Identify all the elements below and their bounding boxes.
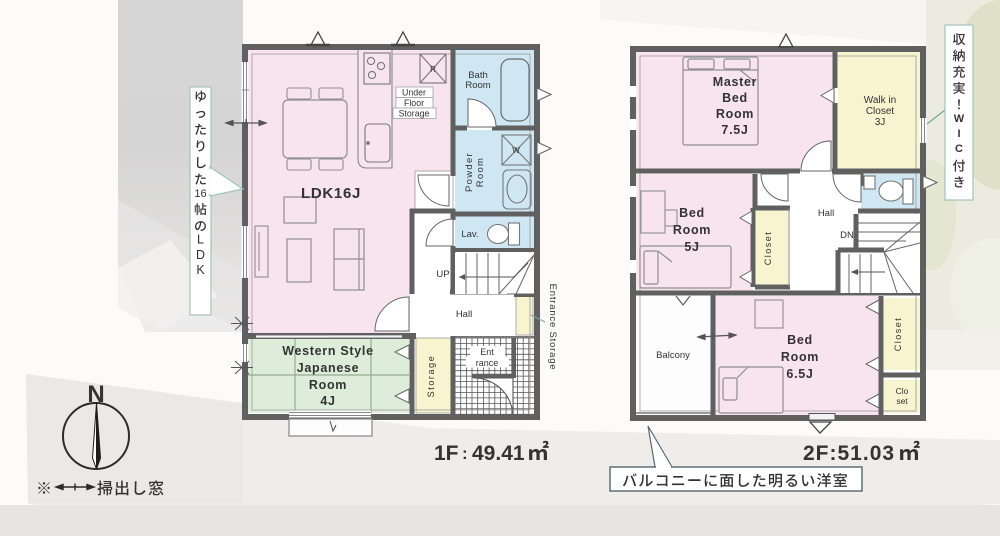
svg-text:Room: Room bbox=[309, 378, 347, 392]
svg-text:2F:51.03: 2F:51.03 bbox=[803, 442, 895, 465]
svg-text:Hall: Hall bbox=[456, 309, 472, 320]
svg-text:UP: UP bbox=[436, 269, 449, 280]
svg-text:Bed: Bed bbox=[787, 333, 813, 347]
svg-text:6.5J: 6.5J bbox=[786, 367, 813, 381]
svg-text:Lav.: Lav. bbox=[461, 229, 478, 240]
svg-text:Western Style: Western Style bbox=[282, 344, 374, 358]
svg-text:K: K bbox=[196, 263, 205, 277]
svg-text:Bed: Bed bbox=[722, 91, 748, 105]
svg-text:LDK16J: LDK16J bbox=[301, 185, 361, 202]
svg-text:3J: 3J bbox=[875, 117, 886, 128]
svg-text:Room: Room bbox=[781, 350, 819, 364]
svg-text:4J: 4J bbox=[320, 394, 335, 408]
svg-text:Under: Under bbox=[402, 88, 426, 98]
svg-text:Room: Room bbox=[716, 107, 754, 121]
svg-text::: : bbox=[462, 444, 468, 463]
svg-text:Closet: Closet bbox=[866, 106, 895, 117]
svg-text:W: W bbox=[512, 146, 520, 155]
svg-text:Storage: Storage bbox=[426, 355, 436, 398]
svg-text:7.5J: 7.5J bbox=[721, 123, 748, 137]
svg-text:rance: rance bbox=[476, 358, 499, 368]
svg-text:Storage: Storage bbox=[399, 109, 430, 119]
svg-text:5J: 5J bbox=[684, 240, 699, 254]
svg-text:R: R bbox=[430, 65, 436, 74]
svg-text:Room: Room bbox=[475, 157, 486, 188]
svg-text:49.41: 49.41 bbox=[472, 442, 525, 465]
svg-text:16: 16 bbox=[194, 188, 206, 200]
svg-text:Walk in: Walk in bbox=[864, 95, 896, 106]
svg-text:C: C bbox=[955, 143, 963, 155]
svg-text:1F: 1F bbox=[434, 442, 459, 465]
svg-text:Powder: Powder bbox=[464, 152, 475, 192]
svg-text:set: set bbox=[896, 396, 908, 406]
svg-text:Closet: Closet bbox=[763, 231, 773, 266]
svg-text:Bed: Bed bbox=[679, 206, 705, 220]
svg-text:D: D bbox=[196, 248, 205, 262]
svg-text:Ent: Ent bbox=[480, 347, 494, 357]
svg-text:Hall: Hall bbox=[818, 208, 834, 219]
svg-text:Room: Room bbox=[673, 223, 711, 237]
svg-text:L: L bbox=[197, 233, 204, 247]
svg-text:Japanese: Japanese bbox=[297, 361, 360, 375]
svg-text:Balcony: Balcony bbox=[656, 350, 690, 361]
svg-text:Floor: Floor bbox=[404, 98, 424, 108]
svg-text:Master: Master bbox=[713, 75, 758, 89]
svg-text:Room: Room bbox=[465, 80, 490, 91]
svg-text:Entrance Storage: Entrance Storage bbox=[547, 284, 558, 371]
svg-text:Clo: Clo bbox=[896, 386, 909, 396]
svg-text:DN: DN bbox=[840, 230, 854, 241]
svg-text:W: W bbox=[954, 113, 965, 125]
svg-text:I: I bbox=[957, 128, 960, 140]
svg-text:Closet: Closet bbox=[893, 317, 903, 352]
